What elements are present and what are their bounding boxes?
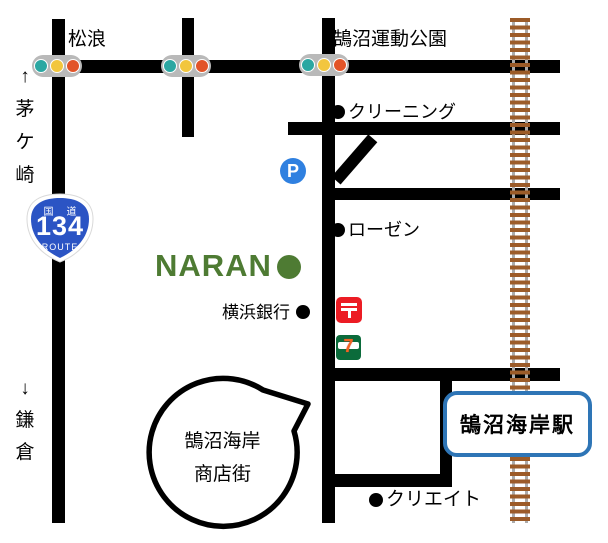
shopping-street-bubble [0,0,608,543]
access-map: 松浪 鵠沼運動公園 ↑ 茅 ケ 崎 ↓ 鎌 倉 国 道 134 ROUTE クリ… [0,0,608,543]
bubble-text-line1: 鵠沼海岸 [150,426,295,453]
kugenuma-kaigan-station-box: 鵠沼海岸駅 [443,391,592,457]
bubble-text-line2: 商店街 [150,459,295,486]
